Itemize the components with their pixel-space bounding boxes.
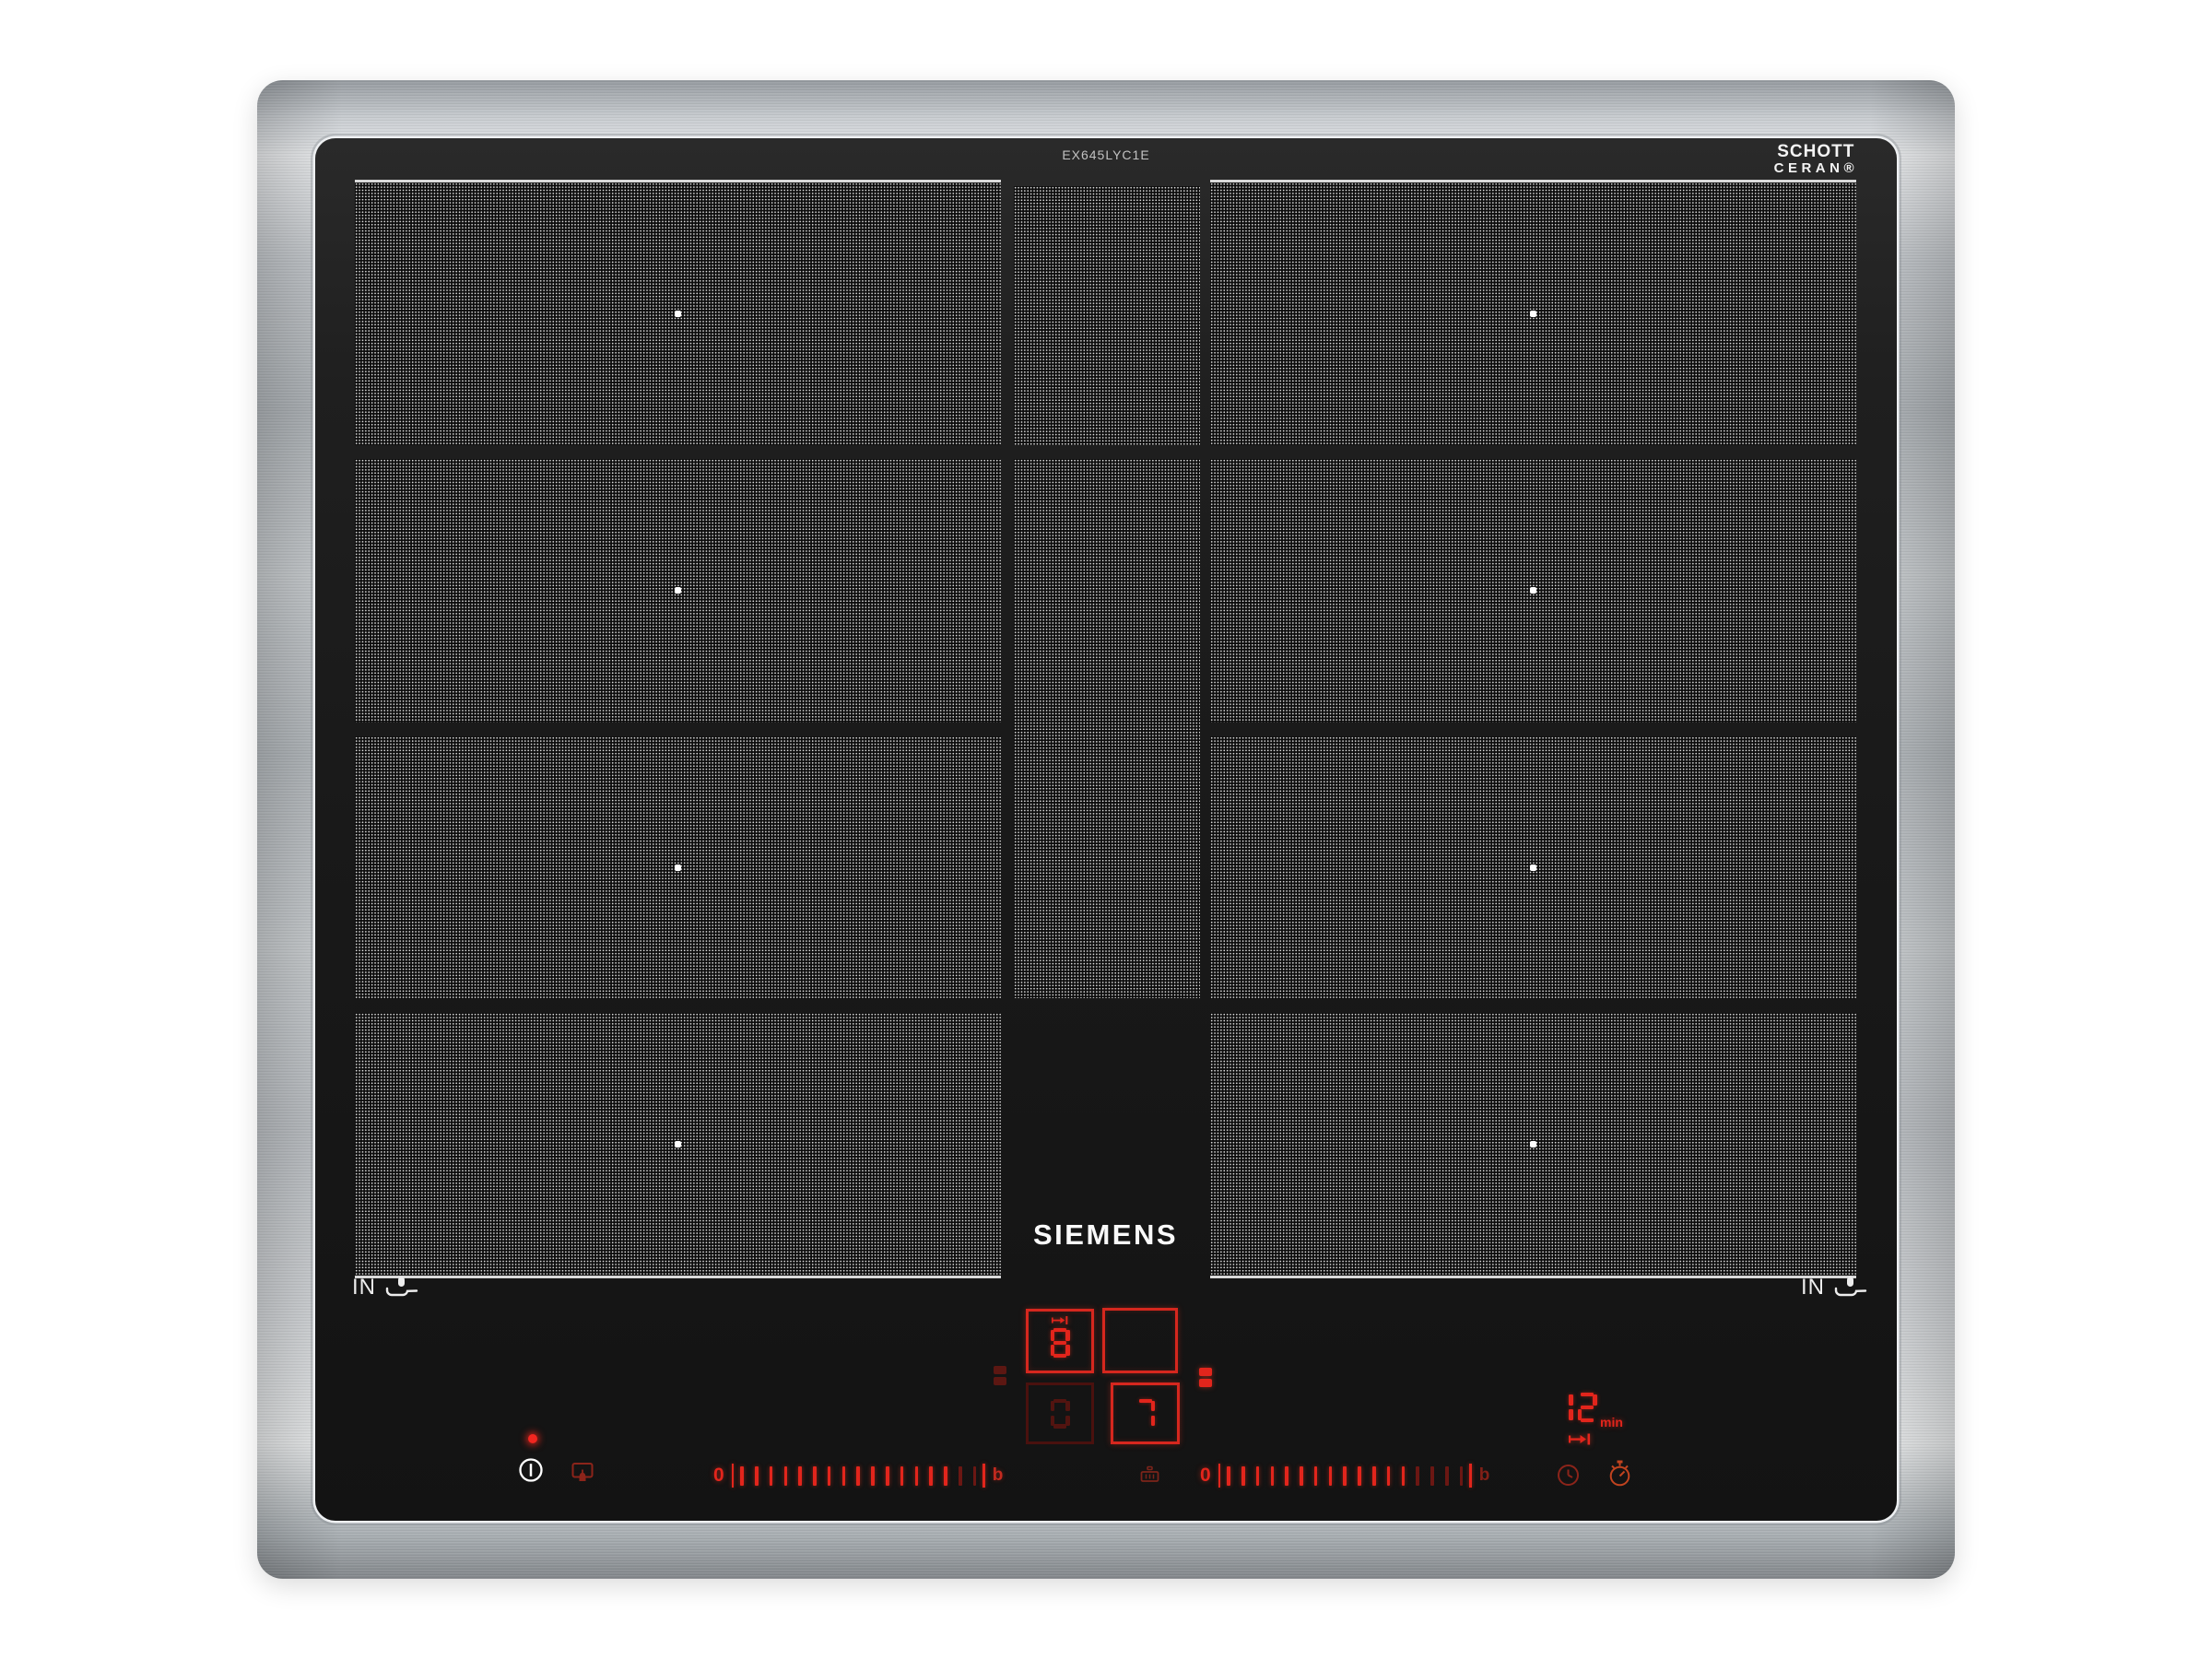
timer-display [1551,1393,1599,1427]
goto-end-icon [1052,1315,1068,1325]
timer-digits [1551,1393,1599,1422]
slider-bar[interactable] [915,1466,919,1486]
center-strip-lower [1014,459,1200,998]
slider-end-bar [1469,1464,1472,1488]
clock-icon [1556,1463,1581,1488]
induction-label: IN [1801,1275,1825,1300]
slider-bars[interactable] [1227,1466,1463,1486]
goto-end-icon [1569,1433,1591,1445]
right-zone-level-display[interactable] [1111,1382,1180,1444]
slider-bar[interactable] [1416,1466,1419,1486]
pot-presence-indicator-right [1199,1368,1212,1388]
product-photo-canvas: EX645LYC1E SCHOTT CERAN® 9001080840 [0,0,2212,1659]
slider-bar[interactable] [856,1466,860,1486]
right-zone-power-digit [1134,1399,1158,1429]
center-strip-upper [1014,186,1200,445]
slider-bar[interactable] [1445,1466,1449,1486]
right-zone-select-frame[interactable] [1102,1308,1178,1373]
slider-bar[interactable] [959,1466,962,1486]
slider-bar[interactable] [740,1466,744,1486]
power-button[interactable] [518,1457,544,1483]
pot-symbol-icon [1138,1465,1161,1484]
slider-bar[interactable] [770,1466,773,1486]
pan-position-dot [675,1141,681,1147]
seven-segment-digit [1051,1328,1070,1358]
slider-bar[interactable] [1402,1466,1406,1486]
slider-zero-label: 0 [713,1465,724,1487]
slider-bar[interactable] [1460,1466,1464,1486]
timer-clock-button[interactable] [1556,1463,1581,1488]
power-slider-left[interactable]: 0 b [713,1460,1003,1491]
induction-pan-icon [1834,1277,1867,1299]
induction-label: IN [352,1275,376,1300]
slider-bar[interactable] [1300,1466,1303,1486]
induction-mark-right: IN [1801,1275,1867,1300]
left-zone-level-display[interactable] [1026,1309,1094,1373]
left-zone-power-digit [1048,1328,1072,1358]
power-indicator-led [528,1434,537,1443]
induction-mark-left: IN [352,1275,418,1300]
slider-bar[interactable] [900,1466,904,1486]
slider-bar[interactable] [1358,1466,1361,1486]
zone-segment [1210,1013,1856,1276]
slider-bar[interactable] [886,1466,889,1486]
zone-segment [1210,459,1856,722]
left-zone-rear-digit [1048,1399,1072,1429]
slider-end-bar [1218,1464,1221,1488]
zone-segment [355,1013,1001,1276]
slider-bar[interactable] [798,1466,802,1486]
slider-bar[interactable] [755,1466,759,1486]
left-zone-rear-display[interactable] [1026,1382,1094,1444]
pan-position-dot [1530,1141,1536,1147]
slider-end-bar [982,1464,985,1488]
cooktop-steel-frame: EX645LYC1E SCHOTT CERAN® 9001080840 [257,80,1955,1579]
kitchen-timer-button[interactable] [1607,1460,1632,1488]
pan-position-dot [1530,311,1536,317]
slider-bar[interactable] [784,1466,788,1486]
induction-pan-icon [385,1277,418,1299]
child-lock-button[interactable] [571,1462,594,1482]
slider-bar[interactable] [1241,1466,1245,1486]
stopwatch-icon [1607,1460,1632,1488]
slider-boost-label: b [993,1465,1004,1486]
pan-position-dot [675,865,681,871]
seven-segment-digit [1554,1393,1573,1422]
slider-zero-label: 0 [1200,1465,1211,1487]
pan-position-dot [675,311,681,317]
slider-bar[interactable] [1271,1466,1275,1486]
schott-logo-line2: CERAN® [1774,161,1858,175]
pot-presence-indicator-left [994,1366,1006,1386]
zone-segment [355,736,1001,999]
seven-segment-digit [1135,1399,1155,1429]
zone-segment [1210,736,1856,999]
slider-bar[interactable] [973,1466,977,1486]
ceramic-glass-surface: EX645LYC1E SCHOTT CERAN® 9001080840 [315,138,1897,1521]
slider-bar[interactable] [1329,1466,1333,1486]
slider-bar[interactable] [1256,1466,1260,1486]
siemens-logo: SIEMENS [1001,1218,1210,1252]
slider-bar[interactable] [1343,1466,1347,1486]
power-slider-right[interactable]: 0 b [1200,1460,1489,1491]
slider-bar[interactable] [871,1466,875,1486]
slider-bar[interactable] [842,1466,846,1486]
slider-bars[interactable] [740,1466,976,1486]
slider-bar[interactable] [1372,1466,1376,1486]
schott-ceran-logo: SCHOTT CERAN® [1774,143,1858,175]
slider-bar[interactable] [1387,1466,1391,1486]
slider-bar[interactable] [1314,1466,1318,1486]
cooking-zone-left [355,180,1001,1278]
slider-boost-label: b [1479,1465,1490,1486]
lock-hand-icon [571,1462,594,1482]
slider-end-bar [732,1464,735,1488]
slider-bar[interactable] [1227,1466,1230,1486]
model-label: EX645LYC1E [315,147,1897,162]
zone-segment [355,182,1001,445]
pan-position-dot [1530,865,1536,871]
timer-unit-label: min [1600,1415,1623,1430]
cooking-zone-right [1210,180,1856,1278]
slider-bar[interactable] [828,1466,831,1486]
zone-segment [355,459,1001,722]
slider-bar[interactable] [929,1466,933,1486]
seven-segment-digit [1051,1399,1070,1429]
pan-position-dot [1530,587,1536,594]
power-icon [518,1457,544,1483]
slider-bar[interactable] [944,1466,947,1486]
seven-segment-digit [1578,1393,1597,1422]
schott-logo-line1: SCHOTT [1774,143,1858,160]
slider-bar[interactable] [813,1466,817,1486]
slider-bar[interactable] [1430,1466,1434,1486]
slider-bar[interactable] [1285,1466,1288,1486]
zone-segment [1210,182,1856,445]
pan-position-dot [675,587,681,594]
